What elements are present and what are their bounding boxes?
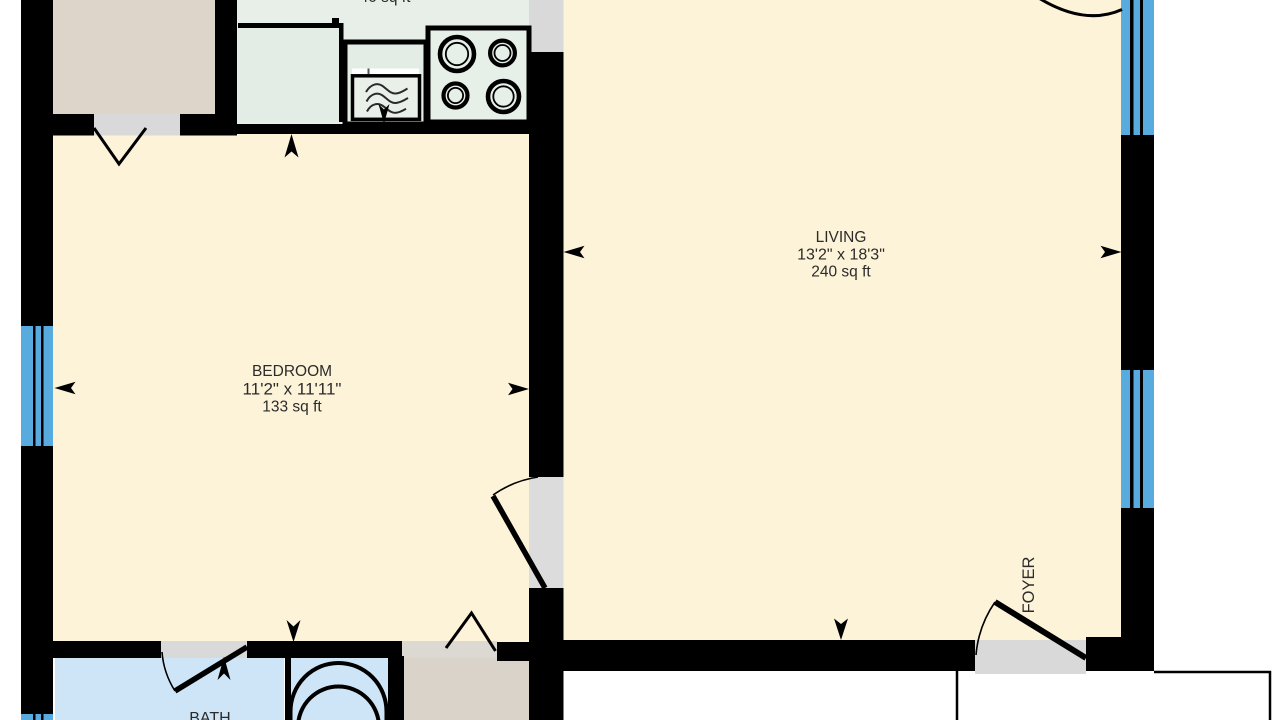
svg-text:FOYER: FOYER [1020, 556, 1038, 613]
svg-text:LIVING: LIVING [816, 229, 867, 246]
svg-text:11'2" x 11'11": 11'2" x 11'11" [243, 380, 342, 399]
svg-text:BEDROOM: BEDROOM [252, 363, 332, 380]
svg-text:240 sq ft: 240 sq ft [811, 264, 871, 281]
svg-text:133 sq ft: 133 sq ft [262, 399, 322, 416]
svg-text:13'2" x 18'3": 13'2" x 18'3" [797, 247, 885, 264]
svg-text:BATH: BATH [189, 710, 230, 720]
svg-text:40 sq ft: 40 sq ft [360, 0, 412, 6]
